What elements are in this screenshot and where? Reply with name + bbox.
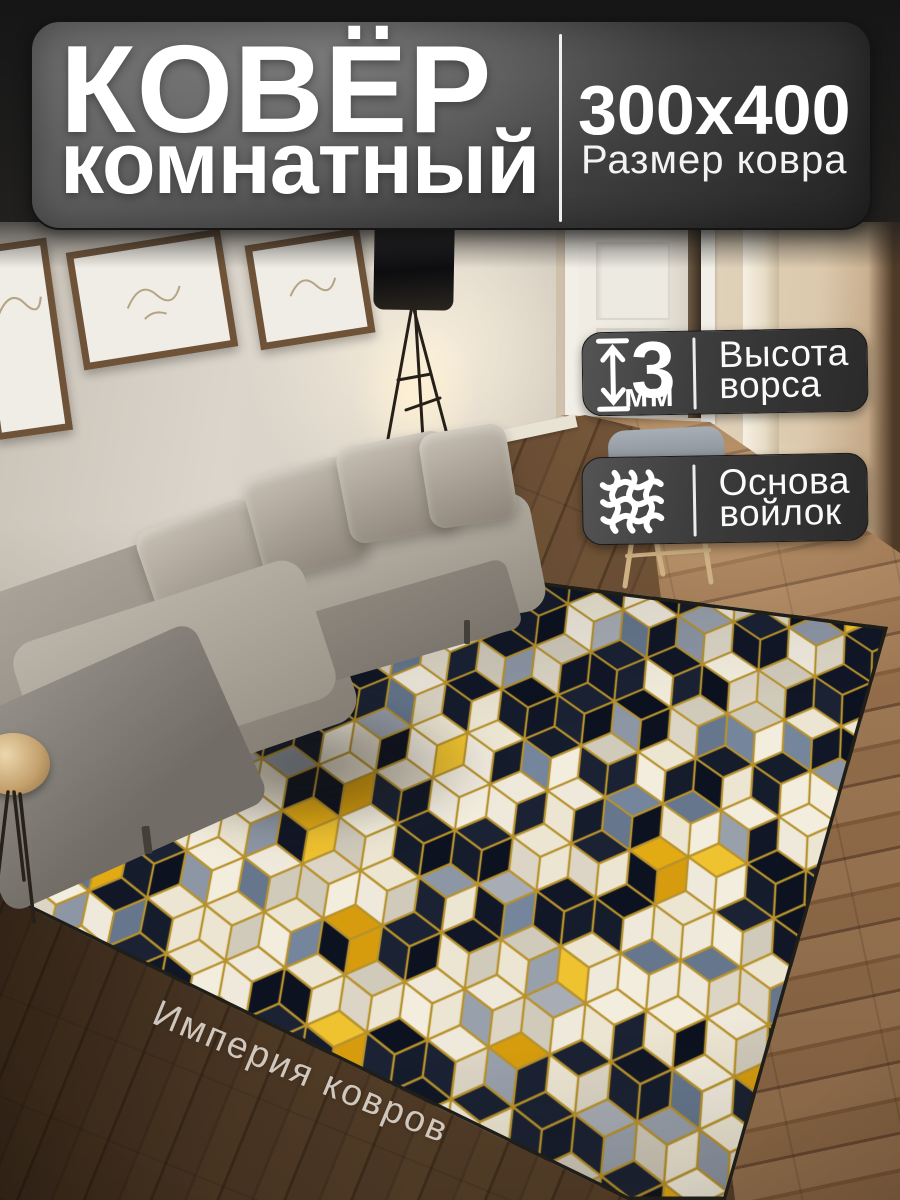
badge-base-material: Основа войлок	[581, 453, 868, 546]
badge-divider	[692, 465, 696, 537]
carpet-size-label: Размер ковра	[581, 140, 848, 180]
wall-corner-shadow	[868, 222, 900, 562]
base-material-label: Основа войлок	[718, 465, 850, 529]
product-subtitle: комнатный	[60, 119, 539, 207]
badge-pile-height: 3 мм Высота ворса	[581, 328, 868, 417]
side-table-legs	[0, 788, 52, 938]
title-banner: КОВЁР комнатный 300x400 Размер ковра	[30, 20, 872, 230]
product-image: Империя ковров 3 мм Высота ворса	[0, 0, 900, 1200]
pile-height-label: Высота ворса	[718, 337, 849, 401]
banner-divider	[559, 34, 562, 222]
pile-height-unit: мм	[617, 376, 682, 415]
badge-divider	[692, 338, 696, 410]
sofa-leg	[464, 620, 470, 644]
weave-icon	[597, 467, 666, 536]
sofa-pillow	[417, 422, 519, 531]
carpet-size-value: 300x400	[578, 75, 851, 145]
